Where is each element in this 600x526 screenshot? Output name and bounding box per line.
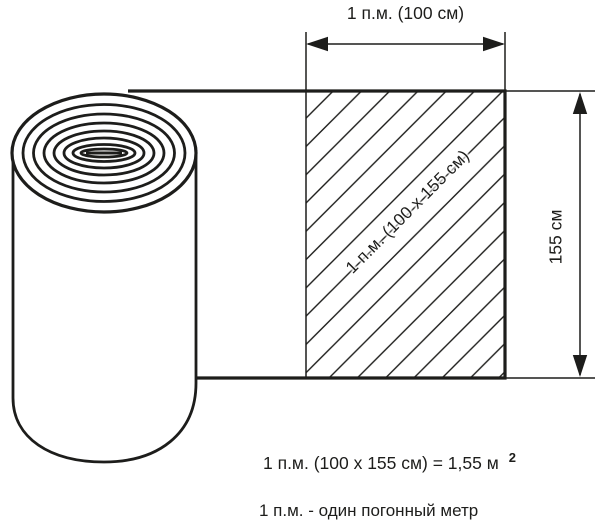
area-formula-text: 1 п.м. (100 x 155 см) = 1,55 м: [263, 453, 499, 473]
top-dimension-arrow: [306, 32, 505, 90]
roll-illustration: [12, 94, 196, 462]
hatched-area: [306, 91, 505, 378]
arrowhead-down-icon: [573, 355, 587, 377]
area-formula-superscript: 2: [509, 450, 516, 465]
arrowhead-right-icon: [483, 37, 505, 51]
height-dimension-label: 155 см: [546, 210, 567, 265]
top-dimension-label: 1 п.м. (100 см): [306, 3, 505, 24]
footnote-definition: 1 п.м. - один погонный метр: [259, 501, 478, 521]
linear-meter-diagram: 1 п.м. (100 см) 1 п.м. (100 x 155 см) 15…: [0, 0, 600, 526]
diagram-graphics: [0, 0, 600, 526]
arrowhead-up-icon: [573, 92, 587, 114]
area-formula: 1 п.м. (100 x 155 см) = 1,55 м2: [263, 450, 516, 474]
roll-end-spiral: [12, 94, 196, 212]
arrowhead-left-icon: [306, 37, 328, 51]
hatch-pattern-fill: [306, 91, 505, 378]
